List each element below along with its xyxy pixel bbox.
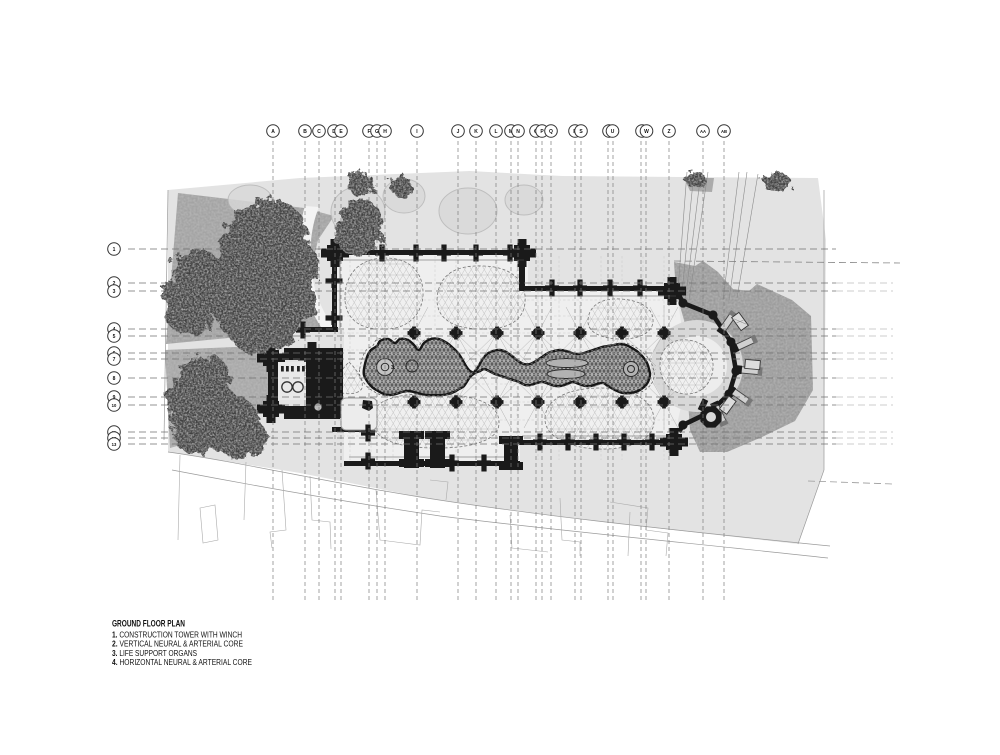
svg-text:AB: AB [721, 129, 727, 134]
svg-text:Q: Q [549, 129, 553, 135]
svg-text:3: 3 [113, 289, 116, 295]
svg-text:J: J [457, 129, 460, 135]
svg-text:GROUND FLOOR PLAN: GROUND FLOOR PLAN [112, 618, 185, 629]
svg-text:10: 10 [112, 403, 117, 408]
svg-text:5: 5 [113, 334, 116, 340]
svg-text:4. HORIZONTAL NEURAL & ARTERIA: 4. HORIZONTAL NEURAL & ARTERIAL CORE [112, 657, 252, 667]
svg-text:AA: AA [700, 129, 706, 134]
svg-text:K: K [474, 129, 478, 135]
svg-text:1: 1 [113, 247, 116, 253]
svg-text:L: L [494, 129, 497, 135]
svg-text:13: 13 [112, 442, 117, 447]
svg-text:8: 8 [113, 376, 116, 382]
svg-text:H: H [383, 129, 387, 135]
svg-text:W: W [644, 129, 649, 135]
svg-text:Z: Z [667, 129, 670, 135]
svg-text:U: U [611, 129, 615, 135]
svg-text:F: F [367, 129, 370, 135]
svg-text:A: A [271, 129, 275, 135]
svg-text:7: 7 [113, 357, 116, 363]
svg-text:B: B [303, 129, 307, 135]
svg-text:3.: 3. [391, 365, 396, 371]
svg-text:N: N [516, 129, 520, 135]
svg-text:C: C [317, 129, 321, 135]
